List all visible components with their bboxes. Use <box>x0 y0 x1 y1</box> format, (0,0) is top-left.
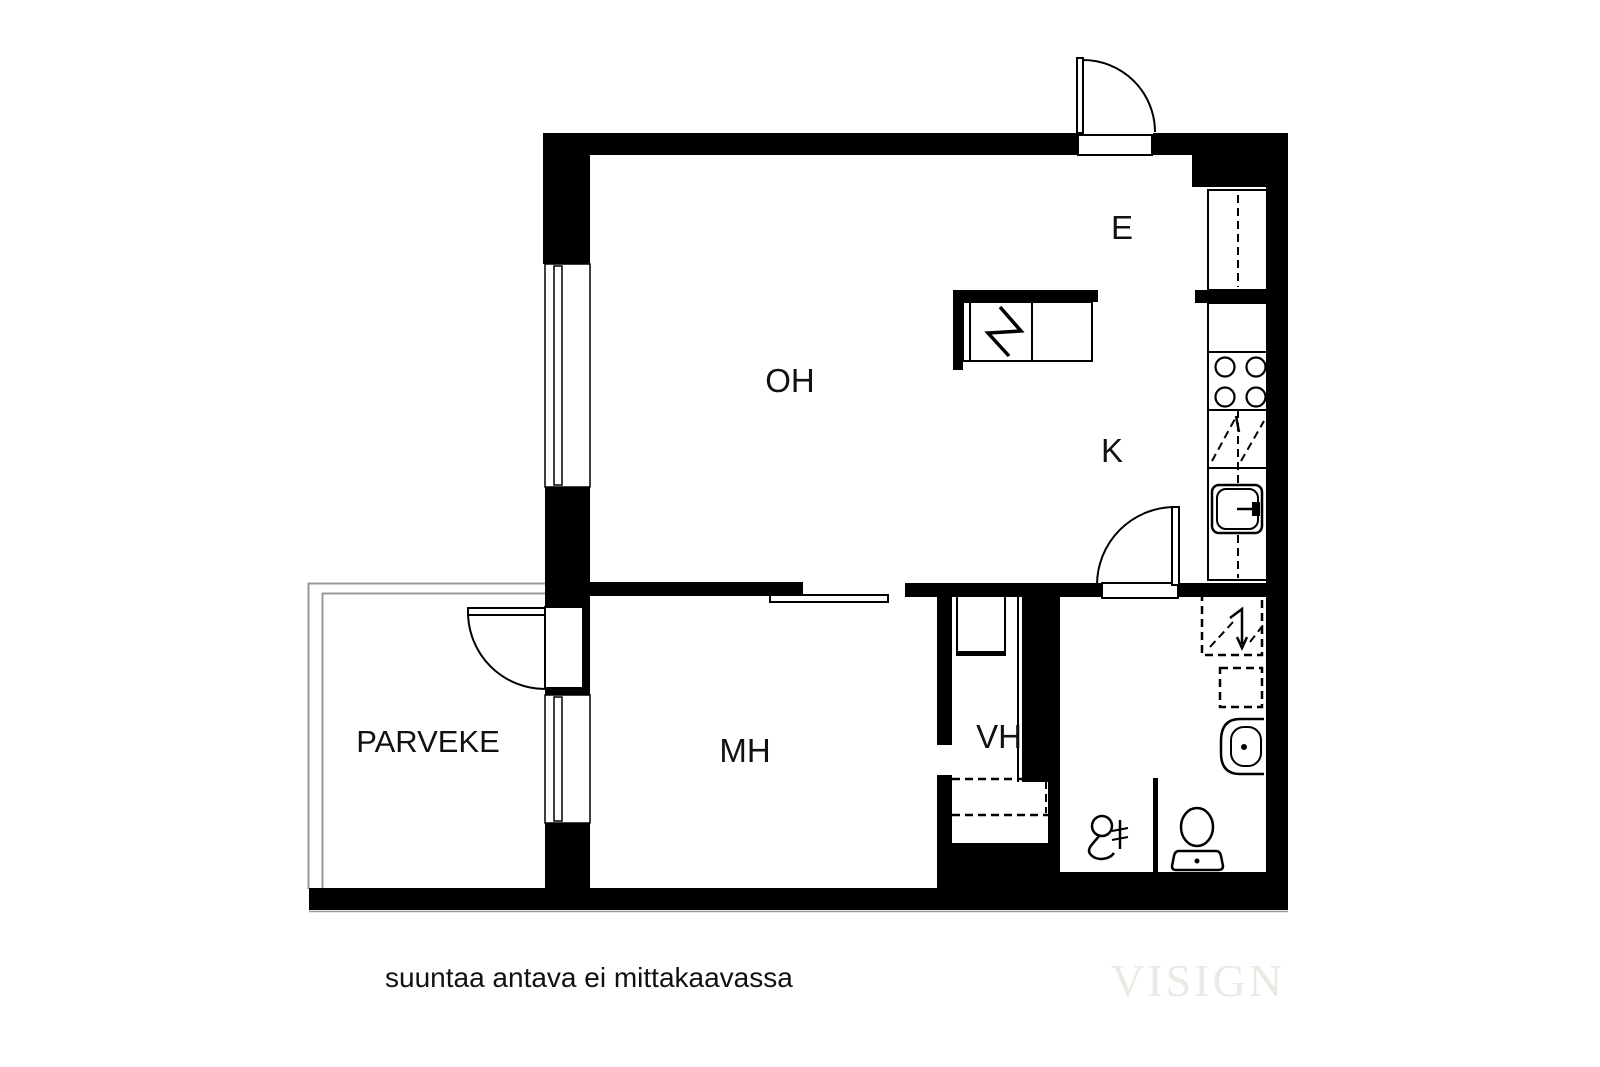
wall-mh-vh-upper <box>937 583 952 745</box>
room-label-closet: VH <box>976 718 1022 755</box>
brand-watermark: VISIGN <box>1111 955 1285 1006</box>
wall-right <box>1266 133 1288 910</box>
door-swing-arc <box>468 612 545 689</box>
window-frame <box>545 695 590 823</box>
wall-vh-corridor <box>905 583 1102 597</box>
kitchen-island <box>963 302 1092 361</box>
floor-plan: E OH K MH VH PARVEKE suuntaa antava ei m… <box>0 0 1600 1067</box>
toilet <box>1172 808 1223 870</box>
shower-symbol <box>1089 816 1128 859</box>
room-label-kitchen: K <box>1101 432 1123 469</box>
island-top-bar <box>953 290 1098 302</box>
wall-top-a <box>590 133 1078 155</box>
shower-head <box>1092 816 1112 836</box>
wall-top-left-block <box>543 133 590 264</box>
cabinet-reservation-box <box>1220 668 1262 707</box>
room-label-entry: E <box>1111 209 1133 246</box>
wall-bath-left <box>1048 583 1060 872</box>
door-threshold <box>545 607 583 688</box>
living-room-window <box>545 264 590 487</box>
reservation-arrow <box>1230 609 1242 644</box>
door-threshold <box>1078 135 1152 155</box>
door-threshold <box>1102 583 1178 598</box>
balcony-door <box>468 607 590 689</box>
sink-faucet <box>1252 502 1260 516</box>
door-leaf <box>1172 507 1179 585</box>
bedroom-window <box>545 695 590 823</box>
wall-vh-bottom-block <box>937 843 1057 910</box>
bathroom-fixtures <box>1089 595 1264 870</box>
door-jamb <box>583 607 590 688</box>
washbasin <box>1221 719 1264 774</box>
room-label-balcony: PARVEKE <box>356 724 500 759</box>
island-cabinets <box>963 302 1092 361</box>
wall-balcony-bottom <box>309 888 545 910</box>
kitchen-mid-bar <box>1195 290 1267 303</box>
door-swing-arc <box>1097 507 1175 585</box>
toilet-button <box>1195 859 1200 864</box>
reservation-diagonal <box>1210 622 1233 647</box>
wall-mh-vh-lower <box>937 775 952 848</box>
kitchen-door <box>1097 507 1179 598</box>
wall-left-sill <box>545 688 590 695</box>
shower-hose <box>1089 836 1114 859</box>
kitchen-sink <box>1212 485 1262 533</box>
washer-reservation-symbol <box>1210 609 1264 648</box>
disclaimer-caption: suuntaa antava ei mittakaavassa <box>385 962 793 993</box>
walls <box>309 133 1288 910</box>
entrance-door <box>1077 58 1155 155</box>
closet-cabinet <box>957 596 1005 655</box>
room-label-living: OH <box>765 362 815 399</box>
wall-bath-bottom <box>1048 872 1288 910</box>
door-swing-arc <box>1083 60 1155 132</box>
sliding-door-leaf <box>770 595 888 602</box>
kitchen-counter-run <box>1208 190 1267 580</box>
basin-drain <box>1241 744 1247 750</box>
door-leaf <box>1077 58 1083 133</box>
island-left-bar <box>953 290 963 370</box>
door-leaf <box>468 608 545 615</box>
wall-oh-mh <box>588 582 803 596</box>
wall-left-mid <box>545 487 590 607</box>
wall-vh-bath-upper <box>1022 596 1050 782</box>
shower-partition <box>1153 778 1158 872</box>
window-glass <box>554 266 562 485</box>
room-label-bedroom: MH <box>719 732 770 769</box>
toilet-bowl <box>1181 808 1213 846</box>
window-glass <box>554 697 562 821</box>
window-frame <box>545 264 590 487</box>
